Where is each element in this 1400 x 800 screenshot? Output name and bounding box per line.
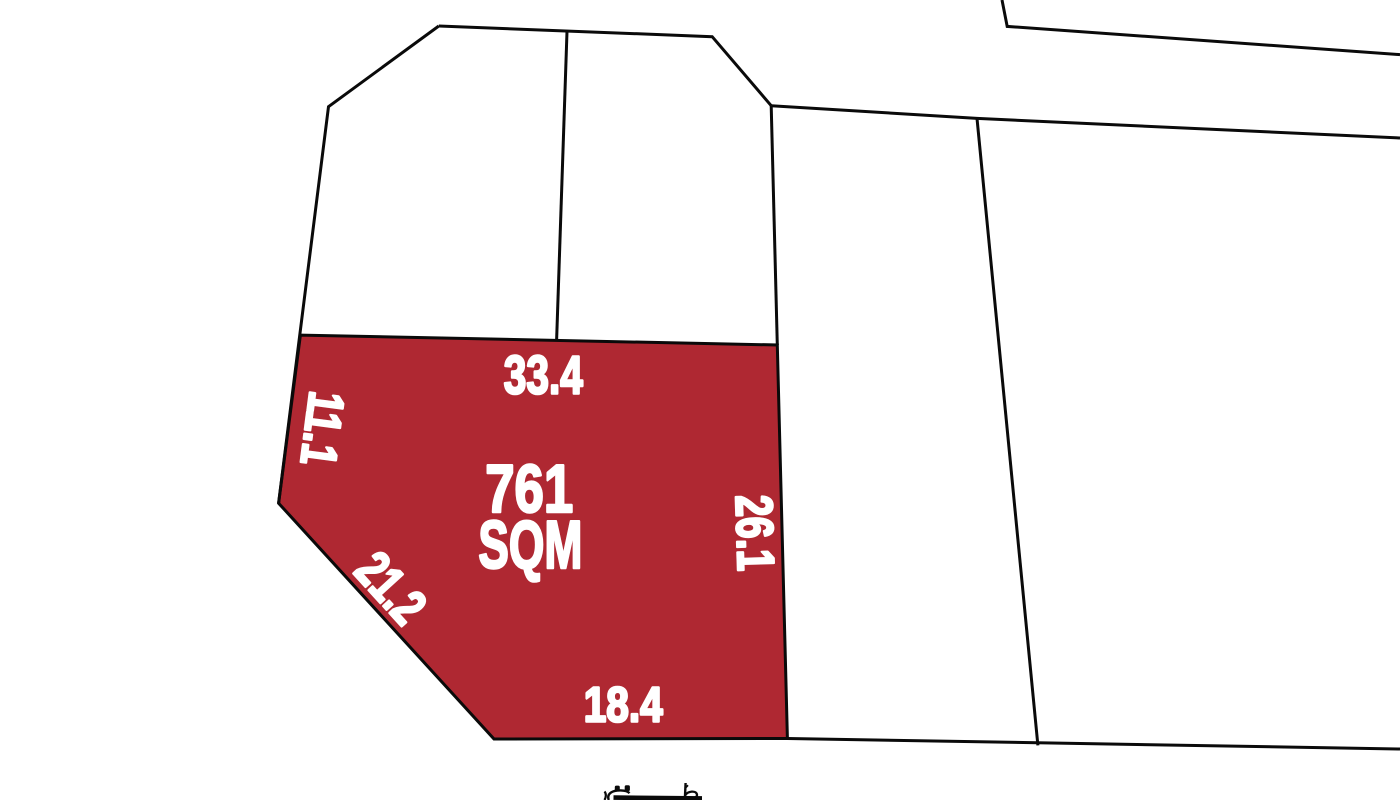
svg-text:11.1: 11.1 xyxy=(290,388,355,469)
svg-text:SQM: SQM xyxy=(478,507,582,583)
svg-text:26.1: 26.1 xyxy=(724,494,784,572)
svg-text:18.4: 18.4 xyxy=(584,679,663,733)
svg-text:33.4: 33.4 xyxy=(504,346,583,406)
